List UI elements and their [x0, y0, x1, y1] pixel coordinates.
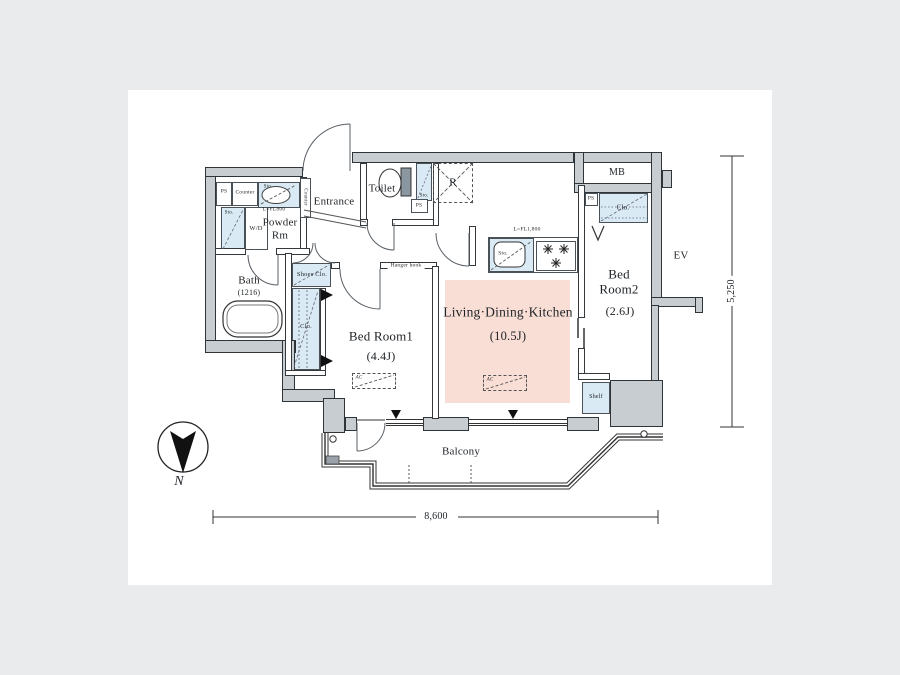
balcony-details	[326, 431, 647, 485]
label-meter-box: MB	[609, 168, 625, 178]
dimension-depth: 5,250	[727, 276, 737, 306]
wall-segment	[651, 152, 662, 307]
label-refrigerator: R	[449, 178, 457, 189]
label-hanger-hook: Hanger hook	[388, 263, 425, 269]
room-label-bedroom1: Bed Room1	[349, 330, 413, 343]
label-shelf: Shelf	[589, 394, 603, 400]
room-label-bath: Bath	[238, 276, 260, 287]
balcony-railing	[325, 433, 663, 486]
label-ps: PS	[221, 189, 228, 195]
partition-wall	[578, 185, 585, 318]
room-size-bath: (1216)	[238, 289, 261, 297]
label-washer-dryer: W/D	[249, 226, 262, 233]
bedroom1-window	[386, 419, 423, 426]
room-size-bedroom1: (4.4J)	[367, 350, 396, 362]
room-label-balcony: Balcony	[442, 447, 480, 458]
stove-box	[536, 241, 576, 271]
ldk-window	[469, 419, 567, 426]
hook-mark	[592, 226, 604, 240]
room-label-ldk: Living·Dining·Kitchen	[443, 305, 572, 319]
label-powder-counter-length: L=FL800	[263, 207, 286, 213]
label-kitchen-counter-length: L=FL1,800	[513, 227, 540, 233]
wall-segment	[610, 380, 663, 427]
room-label-powder-2: Rm	[272, 231, 288, 242]
partition-wall	[392, 219, 434, 226]
label-ac-bedroom1: AC	[356, 376, 363, 381]
wall-segment	[695, 297, 703, 313]
room-label-powder-1: Powder	[263, 218, 298, 229]
floor-plan: Entrance Toilet Powder Rm Bath (1216) Be…	[128, 90, 772, 585]
label-counter-vertical: Counter	[303, 188, 308, 206]
entrance-door-arc	[303, 124, 350, 171]
partition-wall	[276, 248, 310, 255]
wall-segment	[574, 152, 662, 163]
partition-wall	[432, 266, 439, 419]
room-label-entrance: Entrance	[314, 197, 355, 208]
partition-wall	[578, 348, 585, 375]
label-elevator: EV	[673, 251, 688, 262]
label-closet-bedroom2: Clo.	[617, 205, 630, 212]
label-storage: Sto.	[264, 185, 273, 190]
partition-wall	[215, 248, 246, 255]
dimension-width: 8,600	[421, 512, 451, 522]
wall-segment	[662, 170, 672, 188]
balcony-door-arc	[357, 423, 385, 451]
wall-segment	[574, 183, 662, 193]
label-ps: PS	[588, 196, 595, 202]
label-storage: Sto.	[498, 251, 508, 257]
shoes-closet-door-arc	[315, 243, 335, 263]
room-label-toilet: Toilet	[369, 184, 396, 195]
north-compass-icon	[158, 422, 208, 473]
compass-north-label: N	[174, 475, 184, 489]
wall-segment	[352, 152, 574, 163]
room-size-ldk: (10.5J)	[490, 330, 526, 343]
floorplan-page: Entrance Toilet Powder Rm Bath (1216) Be…	[0, 0, 900, 675]
bedroom1-door-arc	[340, 269, 380, 309]
label-storage: Sto.	[420, 194, 429, 199]
room-label-bedroom2-2: Room2	[599, 283, 638, 296]
partition-wall	[285, 253, 292, 376]
partition-wall	[578, 373, 610, 380]
bathtub-icon	[223, 301, 282, 337]
partition-wall	[331, 262, 340, 269]
label-closet-bedroom1: Clo.	[300, 324, 312, 331]
room-label-bedroom2-1: Bed	[608, 268, 630, 281]
label-storage: Sto.	[225, 211, 234, 216]
label-ps: PS	[416, 203, 423, 209]
label-ac-ldk: AC	[487, 378, 494, 383]
hall-door-arc	[436, 233, 469, 266]
wall-segment	[345, 417, 357, 431]
window-sash-line	[386, 423, 423, 424]
window-sash-line	[469, 423, 567, 424]
room-size-bedroom2: (2.6J)	[606, 305, 635, 317]
wall-segment	[323, 398, 345, 433]
label-counter: Counter	[235, 190, 254, 196]
wall-segment	[205, 167, 303, 177]
partition-wall	[360, 219, 368, 226]
partition-wall	[469, 226, 476, 266]
wall-segment	[423, 417, 469, 431]
wall-segment	[567, 417, 599, 431]
wall-segment	[651, 305, 659, 385]
partition-wall	[285, 370, 326, 376]
entrance-step-lines	[304, 210, 366, 228]
wall-segment	[205, 167, 216, 353]
partition-wall	[320, 288, 326, 376]
label-shoes-closet: Shoes Clo.	[297, 272, 327, 279]
partition-wall	[360, 163, 367, 225]
toilet-door-arc	[367, 223, 394, 250]
